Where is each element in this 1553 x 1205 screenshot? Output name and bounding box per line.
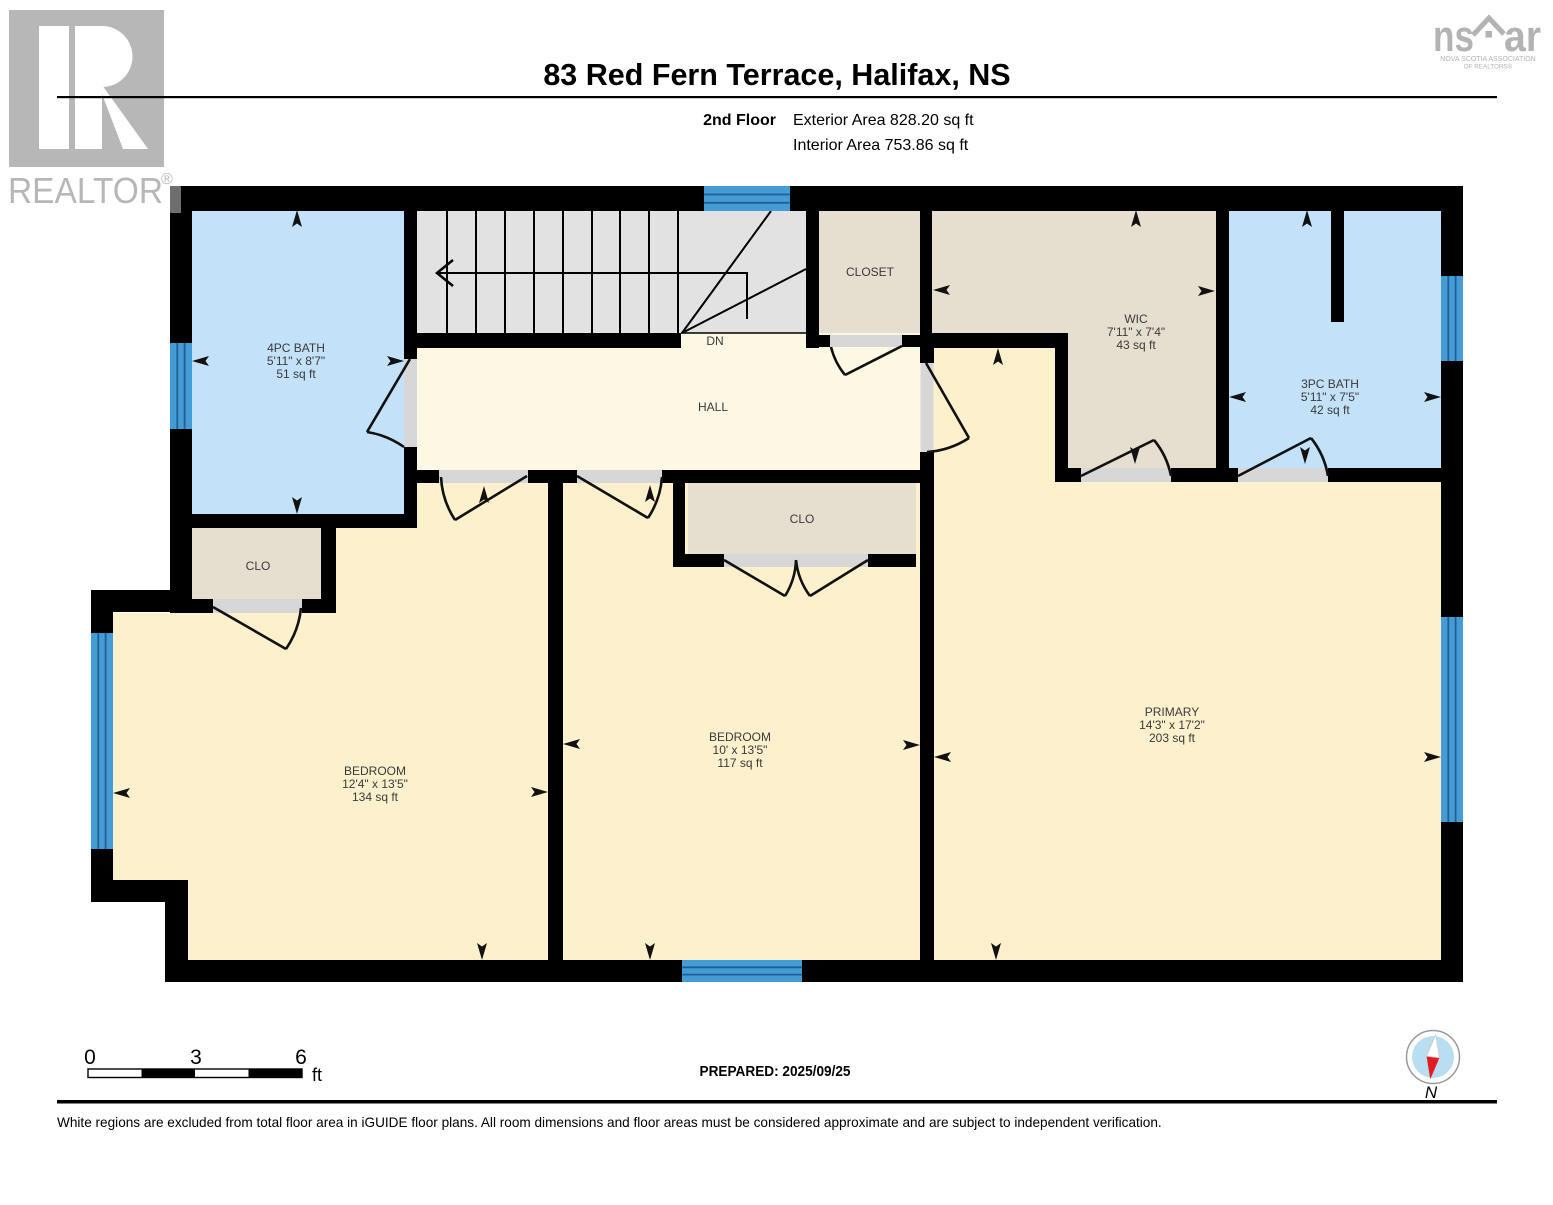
svg-text:CLO: CLO xyxy=(246,559,271,573)
svg-text:ar: ar xyxy=(1504,12,1541,61)
svg-text:N: N xyxy=(1425,1083,1438,1102)
svg-text:14'3" x 17'2": 14'3" x 17'2" xyxy=(1139,718,1205,732)
svg-text:Exterior Area 828.20 sq ft: Exterior Area 828.20 sq ft xyxy=(793,112,974,129)
svg-text:Interior Area 753.86 sq ft: Interior Area 753.86 sq ft xyxy=(793,137,969,154)
svg-text:203 sq ft: 203 sq ft xyxy=(1149,731,1196,745)
svg-text:PRIMARY: PRIMARY xyxy=(1145,705,1199,719)
svg-text:7'11" x 7'4": 7'11" x 7'4" xyxy=(1107,325,1165,339)
svg-text:®: ® xyxy=(161,171,173,188)
svg-text:ns: ns xyxy=(1433,12,1474,61)
svg-text:BEDROOM: BEDROOM xyxy=(709,730,771,744)
svg-text:134 sq ft: 134 sq ft xyxy=(352,790,399,804)
svg-text:CLO: CLO xyxy=(790,512,815,526)
svg-text:ft: ft xyxy=(312,1065,322,1085)
svg-text:BEDROOM: BEDROOM xyxy=(344,764,406,778)
svg-text:117 sq ft: 117 sq ft xyxy=(717,756,763,770)
svg-text:REALTOR: REALTOR xyxy=(8,170,163,211)
svg-text:42 sq ft: 42 sq ft xyxy=(1310,403,1350,417)
svg-text:12'4" x 13'5": 12'4" x 13'5" xyxy=(342,777,408,791)
svg-text:51 sq ft: 51 sq ft xyxy=(276,367,316,381)
svg-text:5'11" x 8'7": 5'11" x 8'7" xyxy=(267,354,325,368)
svg-text:0: 0 xyxy=(84,1046,96,1069)
svg-text:DN: DN xyxy=(706,334,723,348)
svg-text:4PC BATH: 4PC BATH xyxy=(267,341,325,355)
svg-text:5'11" x 7'5": 5'11" x 7'5" xyxy=(1301,390,1359,404)
svg-text:10' x 13'5": 10' x 13'5" xyxy=(713,743,768,757)
svg-text:HALL: HALL xyxy=(698,400,728,414)
svg-text:3PC BATH: 3PC BATH xyxy=(1301,377,1359,391)
svg-text:3: 3 xyxy=(190,1046,202,1069)
svg-text:CLOSET: CLOSET xyxy=(846,265,895,279)
svg-text:83 Red Fern Terrace, Halifax,: 83 Red Fern Terrace, Halifax, NS xyxy=(543,58,1010,92)
svg-text:White regions are excluded fro: White regions are excluded from total fl… xyxy=(57,1115,1162,1130)
svg-text:NOVA SCOTIA ASSOCIATION: NOVA SCOTIA ASSOCIATION xyxy=(1440,56,1535,63)
svg-text:PREPARED: 2025/09/25: PREPARED: 2025/09/25 xyxy=(700,1063,851,1080)
svg-text:43 sq ft: 43 sq ft xyxy=(1116,338,1156,352)
svg-text:WIC: WIC xyxy=(1124,312,1148,326)
svg-text:OF REALTORS®: OF REALTORS® xyxy=(1464,63,1513,71)
svg-text:2nd Floor: 2nd Floor xyxy=(703,112,776,129)
svg-text:6: 6 xyxy=(295,1046,307,1069)
